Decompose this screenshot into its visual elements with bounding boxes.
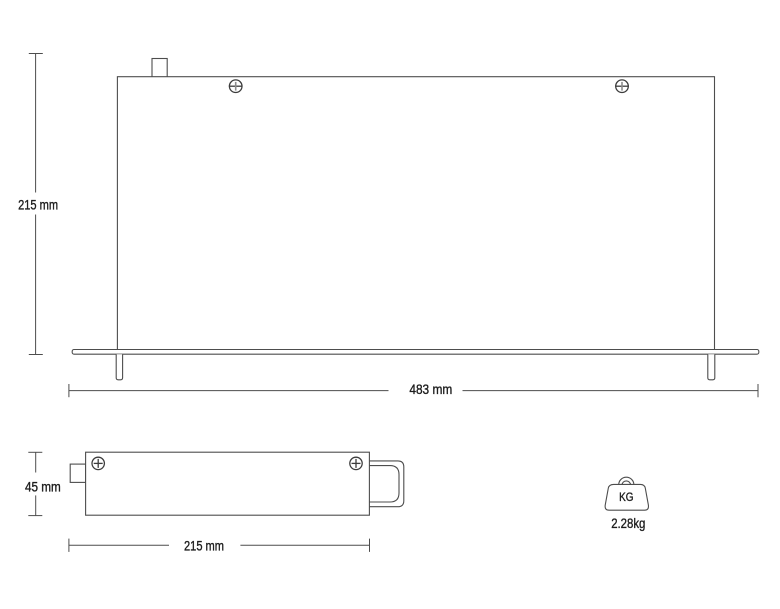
- svg-text:45 mm: 45 mm: [25, 479, 61, 494]
- svg-text:2.28kg: 2.28kg: [611, 516, 645, 531]
- svg-text:483 mm: 483 mm: [409, 382, 452, 397]
- svg-text:215 mm: 215 mm: [184, 538, 224, 553]
- svg-text:215 mm: 215 mm: [18, 198, 58, 213]
- svg-text:KG: KG: [619, 491, 633, 504]
